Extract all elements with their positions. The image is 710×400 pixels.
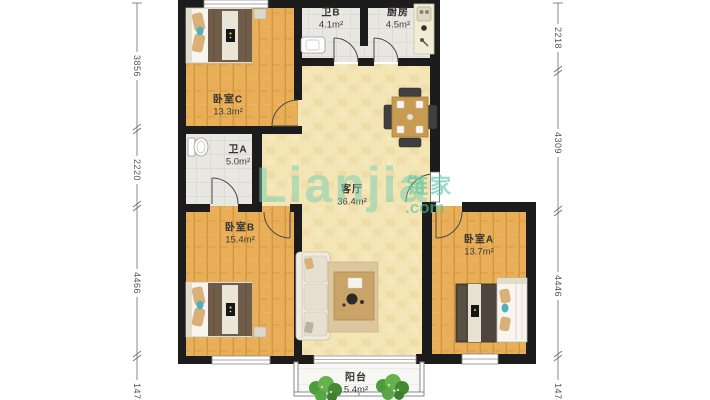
dimension-label: 4466 (132, 269, 142, 297)
window (204, 0, 268, 8)
room-label-balcony: 阳台 5.4m² (344, 372, 368, 395)
room-area: 5.4m² (344, 384, 368, 395)
room-label-bath-a: 卫A 5.0m² (226, 144, 250, 167)
room-name: 卫B (319, 7, 343, 19)
kitchen-counter-icon (414, 4, 434, 54)
window (212, 356, 270, 364)
dimension-label: 2220 (132, 156, 142, 184)
room-name: 卧室C (213, 94, 243, 106)
room-area: 13.3m² (213, 106, 243, 117)
bed-icon (497, 278, 527, 342)
dimension-label: 2218 (553, 24, 563, 52)
sink-icon (301, 37, 325, 53)
room-name: 卧室B (225, 222, 255, 234)
room-area: 15.4m² (225, 234, 255, 245)
room-area: 5.0m² (226, 156, 250, 167)
lianjia-watermark-tld: .com (405, 199, 445, 216)
room-area: 4.1m² (319, 19, 343, 30)
room-label-bedroom-a: 卧室A 13.7m² (464, 234, 494, 257)
room-label-kitchen: 厨房 4.5m² (386, 7, 410, 30)
room-name: 卧室A (464, 234, 494, 246)
lianjia-watermark: Lianjia (256, 160, 428, 210)
sofa-icon (296, 252, 330, 340)
room-label-bedroom-b: 卧室B 15.4m² (225, 222, 255, 245)
floorplan-image: 卧室C 13.3m² 卫B 4.1m² 厨房 4.5m² 卫A 5.0m² 客厅… (0, 0, 710, 400)
room-area: 13.7m² (464, 246, 494, 257)
toilet-icon (188, 138, 208, 156)
dimension-label: 4309 (553, 129, 563, 157)
coffee-table-icon (328, 262, 378, 332)
dimension-label: 4446 (553, 272, 563, 300)
room-name: 阳台 (344, 372, 368, 384)
balcony-threshold (314, 356, 416, 363)
window (462, 354, 498, 364)
room-label-bath-b: 卫B 4.1m² (319, 7, 343, 30)
dimension-line-right (553, 3, 563, 400)
dimension-label: 3856 (132, 52, 142, 80)
room-name: 卫A (226, 144, 250, 156)
room-name: 厨房 (386, 7, 410, 19)
room-label-bedroom-c: 卧室C 13.3m² (213, 94, 243, 117)
dimension-label: 1474 (553, 380, 563, 400)
room-area: 4.5m² (386, 19, 410, 30)
dimension-label: 1474 (132, 380, 142, 400)
wardrobe-icon (456, 284, 498, 342)
lianjia-watermark-cjk: 链家 (407, 176, 453, 197)
